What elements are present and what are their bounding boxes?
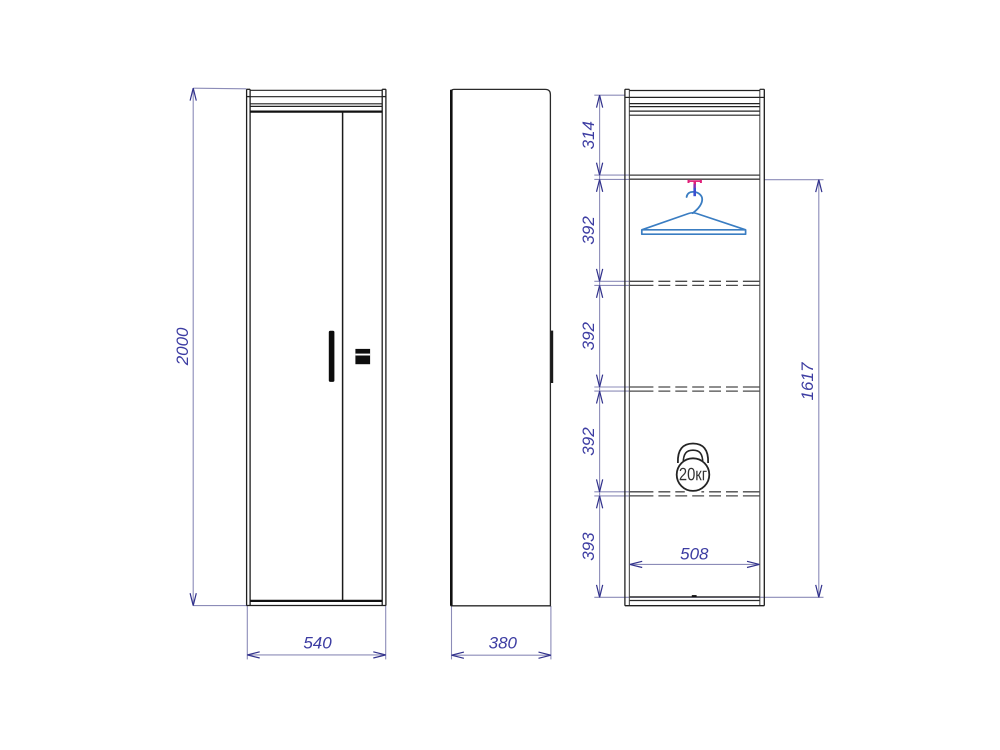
svg-text:314: 314 [579,121,598,149]
svg-text:392: 392 [579,216,598,245]
svg-text:1617: 1617 [798,362,817,400]
svg-text:20кг: 20кг [679,465,707,485]
svg-text:380: 380 [489,634,518,653]
svg-text:393: 393 [579,532,598,561]
svg-text:540: 540 [303,633,332,652]
svg-text:392: 392 [579,427,598,456]
svg-text:2000: 2000 [173,327,192,366]
svg-text:508: 508 [680,544,709,563]
svg-text:392: 392 [579,321,598,350]
